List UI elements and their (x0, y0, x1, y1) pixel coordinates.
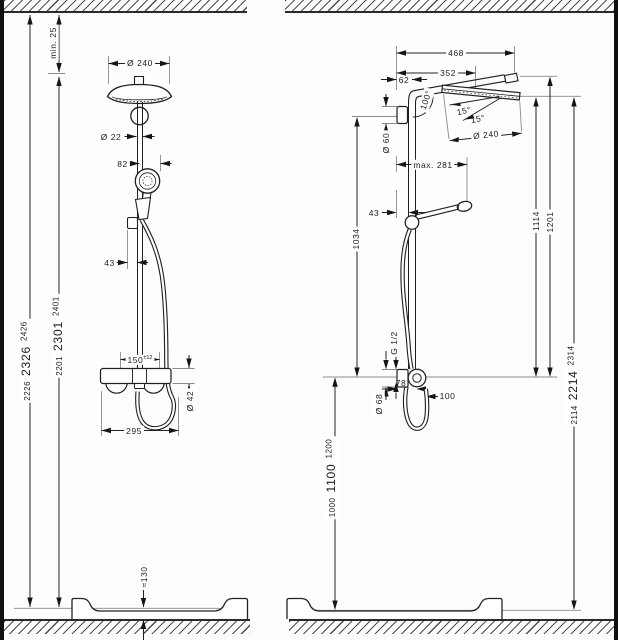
height-pipe-top-high: 2401 (51, 296, 60, 316)
dim-handshower-offset: 82 (115, 158, 130, 169)
height-total-low: 2114 (570, 405, 579, 424)
drawing-linework (0, 0, 618, 640)
dim-holder-offset-left: 43 (102, 257, 117, 268)
height-to-tray-low: 2226 (23, 381, 32, 401)
height-connection-low: 1000 (328, 498, 337, 518)
dim-connection-tolerance: ±12 (143, 354, 152, 360)
dim-thread: G 1/2 (389, 329, 400, 357)
dim-depth: 78 (396, 379, 407, 388)
dim-valve-diameter: Ø 42 (184, 389, 195, 414)
height-connection-high: 1200 (325, 439, 334, 459)
height-total-mid: 2214 (566, 370, 580, 400)
dim-wall-to-pipe: 62 (399, 75, 410, 84)
dim-reach-center: 352 (438, 68, 458, 79)
dim-holder-offset-right: 43 (367, 207, 382, 218)
height-pipe-top-low: 2201 (55, 356, 64, 376)
height-connection-mid: 1100 (324, 463, 338, 492)
height-to-tray-mid: 2326 (19, 346, 33, 376)
dim-bar-length: 1034 (351, 226, 362, 251)
dim-escutcheon-diameter: Ø 68 (374, 392, 385, 417)
right-border-bar (614, 0, 618, 640)
dim-height-head-face: 1114 (530, 209, 541, 233)
round-showerpipe-drawing (72, 77, 248, 620)
dim-height-arm: 1201 (544, 209, 555, 234)
dim-head-diameter-right: Ø 240 (471, 128, 502, 141)
height-total-high: 2314 (566, 345, 575, 365)
dim-height-total: 2114 2214 2314 (566, 343, 580, 426)
dim-min-clearance: min. 25 (48, 25, 59, 61)
technical-drawing: min. 25 Ø 240 Ø 22 82 43 150±12 Ø 42 295… (0, 0, 618, 640)
height-pipe-top-mid: 2301 (51, 321, 65, 351)
dim-bracket-diameter: Ø 60 (380, 130, 391, 155)
height-to-tray-high: 2426 (19, 321, 28, 341)
dim-reach-total: 468 (446, 48, 466, 59)
dim-tray-height: ≈130 (138, 564, 149, 589)
dim-height-connection: 1000 1100 1200 (324, 437, 338, 520)
dim-valve-width: 295 (124, 425, 144, 436)
dim-hose-clearance: 100 (438, 391, 458, 402)
square-showerpipe-drawing (287, 73, 522, 619)
dim-height-to-tray: 2226 2326 2426 (19, 319, 33, 403)
dim-connection-center: 150±12 (126, 354, 155, 365)
dim-max-extension: max. 281 (411, 159, 454, 170)
dim-pipe-diameter: Ø 22 (99, 131, 124, 142)
dim-head-diameter-left: Ø 240 (125, 58, 155, 69)
left-border-bar (0, 0, 4, 640)
dim-height-pipe-top: 2201 2301 2401 (51, 294, 65, 378)
